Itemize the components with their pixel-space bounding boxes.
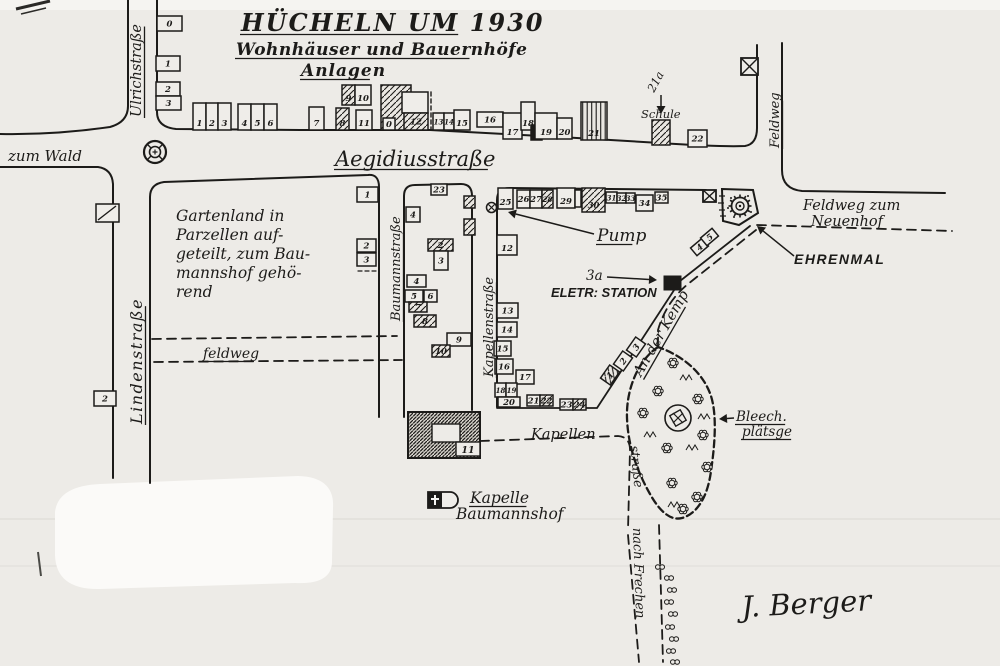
tree-symbol (667, 478, 677, 488)
building-number: 2 (363, 242, 370, 252)
road-feldweg-north-dashed (152, 336, 397, 339)
building-outbuilding (464, 219, 475, 235)
building-number: 2 (437, 241, 444, 251)
tree-symbol (638, 408, 648, 418)
building-number: 11 (461, 445, 474, 456)
building-number: 8 (422, 317, 428, 327)
building-number: 10 (435, 347, 447, 357)
building-18: 18 (495, 383, 506, 397)
building-number: 1 (197, 119, 203, 129)
street-feldweg-right-text: Feldweg (768, 92, 783, 149)
building-6: 6 (424, 290, 437, 302)
street-aegidiusstrasse: Aegidiusstraße (333, 147, 495, 171)
building-number: 10 (357, 94, 369, 104)
building-outline (464, 219, 475, 235)
building-number: 4 (410, 211, 416, 221)
building-19: 19 (506, 383, 517, 397)
building-number: 1 (165, 60, 171, 70)
building-21: 21 (527, 395, 540, 407)
building-14: 14 (497, 322, 517, 337)
building-number: 25 (499, 198, 512, 208)
building-1: 1 (193, 103, 206, 130)
tree-symbol (662, 443, 672, 453)
building-number: 19 (540, 128, 552, 138)
building-number: 6 (268, 119, 274, 129)
building-number: 20 (502, 398, 515, 408)
building-3: 3 (357, 253, 376, 266)
building-number: 12 (410, 118, 422, 128)
building-number: 34 (639, 199, 651, 209)
road-ulrichstrasse-west (0, 0, 128, 134)
road-nach-frechen-east-dashed (659, 525, 663, 662)
label-bleech-line1: Bleech. (735, 409, 787, 425)
crossroads-cross-symbol (144, 141, 166, 163)
building-number: 9 (456, 336, 462, 346)
building-7: 7 (309, 107, 324, 130)
gartenland-line1: Gartenland in (176, 207, 284, 225)
building-24: 24 (573, 399, 586, 411)
gartenland-line3-text: geteilt, zum Bau- (176, 245, 310, 263)
street-kapellenstrasse-text: Kapellenstraße (482, 277, 497, 378)
building-number: 16 (484, 116, 496, 126)
building-number: 17 (507, 128, 519, 138)
building-4: 4 (406, 207, 420, 222)
street-an-der-kemp-text: An der Kemp (630, 288, 693, 381)
pump-symbol (487, 203, 497, 213)
building-6: 6 (264, 104, 277, 130)
building-number: 17 (519, 373, 531, 383)
street-lindenstrasse: Lindenstraße (127, 298, 146, 425)
building-17: 17 (516, 370, 534, 384)
building-15: 15 (454, 110, 470, 130)
label-baumannshof-text: Baumannshof (455, 505, 567, 523)
building-outbuilding (575, 190, 581, 207)
building-number: 21 (587, 129, 600, 139)
bush-symbol (656, 565, 665, 570)
gartenland-line4: mannshof gehö- (176, 264, 301, 282)
building-8: 8 (414, 315, 436, 327)
tree-symbol (692, 492, 702, 502)
signature-text: J. Berger (736, 583, 874, 624)
label-ehrenmal-text: EHRENMAL (794, 251, 885, 267)
building-outbuilding (96, 204, 119, 222)
title-line3-text: Anlagen (299, 61, 386, 81)
building-27: 27 (529, 190, 542, 208)
building-number: 1 (365, 191, 371, 201)
building-number: 11 (358, 119, 370, 129)
label-pump-text: Pump (596, 226, 647, 246)
building-number: 35 (656, 194, 668, 204)
label-3a: 3a (586, 268, 603, 284)
building-23: 23 (431, 184, 447, 196)
street-zum-wald: zum Wald (7, 147, 82, 165)
building-0: 0 (383, 118, 395, 130)
building-number: 23 (560, 401, 573, 411)
bush-symbol (670, 637, 679, 642)
title-line3: Anlagen (299, 61, 386, 81)
building-outbuilding (464, 196, 475, 208)
building-number: 20 (558, 128, 571, 138)
street-ulrichstrasse-text: Ulrichstraße (129, 24, 145, 117)
pump-arrow (508, 210, 594, 234)
street-feldweg-right: Feldweg (768, 92, 783, 149)
building-3: 3 (218, 103, 231, 130)
building-number: 22 (691, 135, 704, 145)
building-16: 16 (477, 112, 503, 127)
building-outbuilding (652, 120, 670, 145)
building-17: 17 (503, 113, 522, 139)
building-number: 28 (542, 195, 553, 204)
building-number: 4 (242, 119, 248, 129)
building-number: 13 (502, 307, 514, 317)
building-number: 15 (456, 119, 468, 129)
huecheln-map-1930: 0123123456789101101213141516171819202122… (0, 0, 1000, 666)
building-20: 20 (498, 397, 520, 408)
road-an-der-kemp-northwest (497, 226, 750, 408)
building-2: 2 (206, 103, 218, 130)
bush-symbol (668, 588, 677, 593)
road-feldweg-south-dashed (154, 360, 402, 362)
building-number: 15 (497, 345, 509, 355)
building-12: 12 (404, 113, 428, 130)
building-31: 31 (606, 192, 617, 203)
building-4: 4 (407, 275, 426, 287)
kapelle-symbol (428, 492, 458, 508)
building-21: 21 (581, 102, 607, 140)
street-feldweg-dashed: feldweg (202, 346, 259, 362)
building-7: 7 (409, 302, 427, 313)
label-schule-text: Schule (641, 107, 681, 121)
label-neuenhof-text: Neuenhof (810, 214, 886, 230)
building-16: 16 (495, 359, 513, 374)
tree-symbol (702, 462, 712, 472)
building-28: 28 (542, 190, 553, 208)
gartenland-line1-text: Gartenland in (176, 207, 284, 225)
building-5: 5 (251, 104, 264, 130)
bush-symbol (671, 660, 680, 665)
label-schule: Schule (641, 107, 681, 121)
street-kapellen-text: Kapellen (530, 427, 596, 443)
label-neuenhof: Neuenhof (810, 214, 886, 230)
building-8: 8 (336, 108, 349, 130)
grass-mark (668, 502, 680, 507)
ehrenmal-arrow (757, 226, 794, 256)
grass-mark (644, 432, 656, 437)
tree-symbol (668, 358, 678, 368)
building-number: 29 (559, 197, 572, 207)
building-1: 1 (156, 56, 180, 71)
whiteout-blob (55, 476, 333, 589)
building-13: 13 (433, 113, 444, 130)
building-10: 10 (432, 345, 450, 357)
building-number: 0 (386, 120, 392, 130)
building-22: 22 (540, 395, 553, 407)
street-strasse: straße (626, 445, 645, 489)
label-3a-text: 3a (586, 268, 603, 284)
building-number: 3 (222, 119, 228, 129)
building-2: 2 (156, 82, 180, 96)
building-number: 31 (607, 194, 617, 203)
label-21a-text: 21a (644, 69, 667, 96)
street-nach-frechen-text: nach Frechen (629, 528, 647, 619)
building-number: 21 (527, 397, 540, 407)
building-number: 19 (507, 386, 517, 395)
building-number: 3 (166, 99, 172, 109)
street-kapellen: Kapellen (530, 427, 596, 443)
building-2: 2 (428, 239, 453, 251)
building-number: 0 (167, 20, 173, 30)
label-21a: 21a (644, 69, 667, 96)
title-line1-text: HÜCHELN UM 1930 (240, 8, 545, 37)
building-1: 1 (357, 187, 378, 202)
street-feldweg-dashed-text: feldweg (202, 346, 259, 362)
building-0: 0 (157, 16, 182, 31)
label-eletr-station-text: ELETR: STATION (551, 285, 657, 300)
building-3: 3 (156, 96, 181, 110)
building-number: 7 (314, 119, 320, 129)
gartenland-line2: Parzellen auf- (175, 226, 283, 244)
label-ehrenmal: EHRENMAL (794, 251, 885, 267)
building-25: 25 (498, 188, 513, 209)
building-outline (575, 190, 581, 207)
bush-symbol (667, 649, 676, 654)
building-number: 24 (573, 401, 586, 411)
label-pump: Pump (596, 226, 647, 246)
building-3: 3 (434, 251, 448, 270)
gartenland-line2-text: Parzellen auf- (175, 226, 283, 244)
building-12: 12 (497, 235, 517, 255)
station-arrow (607, 275, 657, 284)
label-bleech-line1-text: Bleech. (735, 409, 787, 425)
signature: J. Berger (736, 583, 874, 624)
building-outline (402, 92, 428, 113)
building-2: 2 (357, 239, 376, 252)
building-13: 13 (497, 303, 518, 318)
label-feldweg-zum: Feldweg zum (802, 198, 900, 214)
building-number: 16 (498, 363, 510, 373)
building-number: 5 (255, 119, 261, 129)
building-number: 27 (529, 195, 542, 205)
building-number: 8 (340, 119, 346, 129)
building-5: 5 (405, 290, 423, 302)
building-23: 23 (560, 399, 573, 411)
building-22: 22 (688, 130, 707, 147)
label-eletr-station: ELETR: STATION (551, 285, 657, 300)
building-number: 6 (428, 292, 434, 302)
grass-mark (698, 414, 710, 419)
building-number: 5 (411, 292, 417, 302)
gartenland-line5: rend (176, 283, 213, 301)
building-number: 14 (444, 118, 454, 127)
bush-symbol (666, 625, 675, 630)
street-lindenstrasse-text: Lindenstraße (127, 298, 146, 425)
building-35: 35 (655, 192, 668, 204)
grass-mark (680, 375, 692, 380)
building-number: 3 (364, 256, 370, 266)
road-feldweg-east (782, 43, 945, 193)
building-9: 9 (447, 333, 471, 346)
building-26: 26 (517, 190, 530, 208)
label-bleech-line2-text: plätsge (742, 424, 792, 440)
building-1: 1 (600, 365, 619, 385)
building-19: 19 (535, 113, 557, 139)
ehrenmal-cross-box-symbol (703, 190, 716, 202)
building-33: 33 (626, 193, 636, 203)
grass-mark (686, 445, 698, 450)
building-number: 18 (496, 386, 506, 395)
building-number: 2 (164, 85, 171, 95)
building-number: 33 (626, 194, 636, 203)
building-2: 2 (94, 391, 116, 406)
tree-symbol (698, 430, 708, 440)
building-number: 14 (501, 326, 513, 336)
building-number: 13 (434, 118, 444, 127)
street-strasse-text: straße (626, 445, 645, 489)
bush-symbol (665, 576, 674, 581)
building-number: 30 (588, 201, 600, 211)
building-10: 10 (355, 85, 371, 105)
building-number: 3 (438, 257, 444, 267)
gartenland-line3: geteilt, zum Bau- (176, 245, 310, 263)
building-outline (652, 120, 670, 145)
building-number: 9 (346, 94, 352, 104)
building-30: 30 (582, 188, 605, 212)
title-line1: HÜCHELN UM 1930 (240, 8, 545, 37)
street-ulrichstrasse: Ulrichstraße (129, 24, 145, 118)
feldweg-cross-box-symbol (741, 58, 758, 75)
building-number: 2 (208, 119, 215, 129)
building-14: 14 (444, 113, 454, 130)
tree-symbol (653, 386, 663, 396)
building-number: 2 (101, 395, 108, 405)
bush-symbol (669, 612, 678, 617)
building-number: 26 (517, 195, 530, 205)
label-baumannshof: Baumannshof (455, 505, 567, 523)
street-an-der-kemp: An der Kemp (630, 288, 693, 381)
building-11: 11 (356, 110, 372, 130)
street-baumannstrasse: Baumannstraße (389, 216, 404, 322)
building-number: 12 (501, 244, 513, 254)
title-line2: Wohnhäuser und Bauernhöfe (235, 40, 528, 60)
street-zum-wald-text: zum Wald (7, 147, 82, 165)
building-34: 34 (636, 195, 653, 211)
scanned-map-page: 0123123456789101101213141516171819202122… (0, 0, 1000, 666)
building-number: 7 (415, 303, 421, 313)
building-4: 4 (238, 104, 251, 130)
street-kapellenstrasse: Kapellenstraße (482, 277, 497, 378)
scratch-mark (38, 552, 41, 576)
building-outbuilding (402, 92, 428, 113)
label-feldweg-zum-text: Feldweg zum (802, 198, 900, 214)
street-aegidiusstrasse-text: Aegidiusstraße (333, 147, 495, 171)
building-9: 9 (342, 85, 355, 105)
gartenland-line4-text: mannshof gehö- (176, 264, 301, 282)
building-number: 23 (432, 186, 445, 196)
building-number: 4 (414, 277, 420, 287)
bleichplatz-center-symbol (665, 405, 691, 431)
building-20: 20 (557, 118, 572, 139)
label-bleech-line2: plätsge (741, 424, 792, 440)
building-outline (464, 196, 475, 208)
building-2: 2 (613, 351, 632, 371)
building-29: 29 (557, 188, 575, 208)
building-11-baumannshof: 11 (408, 412, 480, 458)
building-number: 22 (540, 397, 553, 407)
street-nach-frechen: nach Frechen (629, 528, 647, 619)
title-line2-text: Wohnhäuser und Bauernhöfe (236, 40, 528, 60)
bleech-arrow (719, 414, 734, 423)
street-baumannstrasse-text: Baumannstraße (389, 216, 404, 322)
tree-symbol (693, 394, 703, 404)
bush-symbol (665, 600, 674, 605)
gartenland-line5-text: rend (176, 283, 213, 301)
